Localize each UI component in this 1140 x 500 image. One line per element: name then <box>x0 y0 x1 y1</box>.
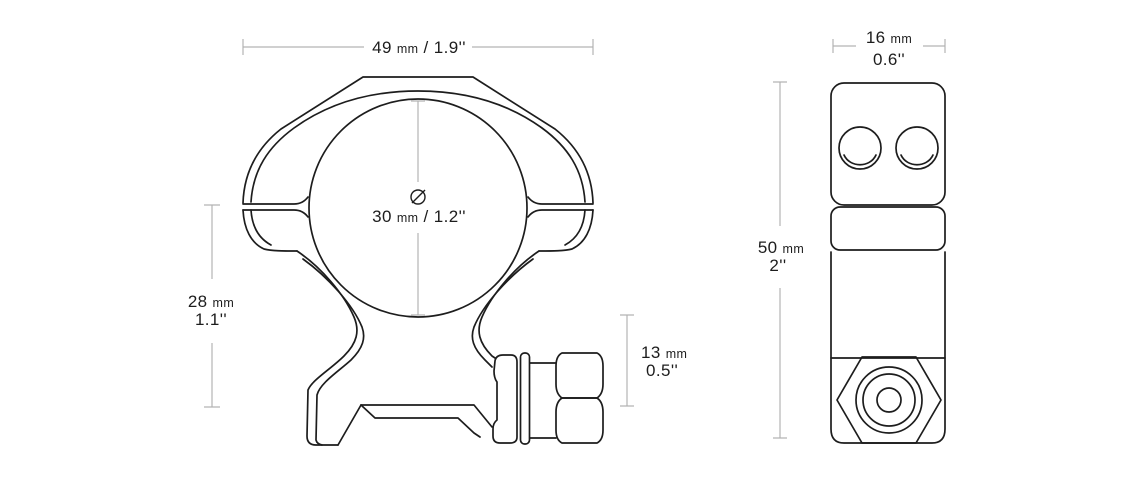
scope-ring-technical-drawing: 49mm/ 1.9'' 30mm/ 1.2'' 28mm 1.1'' 13mm … <box>0 0 1140 500</box>
front-split-line-left-upper <box>243 197 308 204</box>
front-wing-right-inner <box>565 210 585 245</box>
side-screw-hole-right-depth-arc <box>901 155 933 165</box>
dim-inner-diameter: 30mm/ 1.2'' <box>372 101 466 315</box>
dim-clamp-height-label-mm: 13mm <box>641 343 687 362</box>
scope-ring-front-view <box>243 77 603 445</box>
dim-saddle-height-label-mm: 28mm <box>188 292 234 311</box>
front-clamp-plate <box>521 353 530 444</box>
scope-ring-side-view <box>831 83 945 443</box>
side-nut-middle-circle <box>863 374 915 426</box>
side-top-block <box>831 83 945 205</box>
front-bolt-shaft <box>530 363 556 438</box>
front-hex-nut-upper <box>556 353 603 398</box>
dim-inner-diameter-label: 30mm/ 1.2'' <box>372 207 466 226</box>
front-leg-right-inner <box>472 259 533 367</box>
dim-clamp-height-label-in: 0.5'' <box>646 361 678 380</box>
dim-overall-width: 49mm/ 1.9'' <box>243 38 593 57</box>
dim-clamp-height-line <box>620 315 634 406</box>
front-rail-dovetail-line <box>361 405 480 437</box>
front-rail-top-line <box>361 405 492 427</box>
front-split-line-right-upper <box>528 197 593 204</box>
front-split-line-left-lower <box>243 210 308 217</box>
side-nut-outer-circle <box>856 367 922 433</box>
dim-side-height-label-in: 2'' <box>769 256 786 275</box>
side-screw-hole-left <box>839 127 881 169</box>
front-clamp-claw <box>493 355 517 443</box>
side-nut-center-circle <box>877 388 901 412</box>
side-hex-nut-face <box>837 357 941 443</box>
front-hex-nut-lower <box>556 398 603 443</box>
dim-clamp-height: 13mm 0.5'' <box>620 315 687 406</box>
front-jaw-left-edge <box>338 405 361 445</box>
side-lower-body <box>831 252 945 443</box>
dim-overall-width-label: 49mm/ 1.9'' <box>372 38 466 57</box>
side-screw-hole-left-depth-arc <box>844 155 876 165</box>
front-split-line-right-lower <box>528 210 593 217</box>
dim-saddle-height: 28mm 1.1'' <box>188 205 234 407</box>
dim-side-width: 16mm 0.6'' <box>833 28 945 69</box>
dim-side-height: 50mm 2'' <box>758 82 804 438</box>
dim-side-width-label-in: 0.6'' <box>873 50 905 69</box>
technical-drawing-canvas: 49mm/ 1.9'' 30mm/ 1.2'' 28mm 1.1'' 13mm … <box>0 0 1140 500</box>
side-screw-hole-right <box>896 127 938 169</box>
dim-side-height-label-mm: 50mm <box>758 238 804 257</box>
side-middle-band <box>831 207 945 250</box>
dim-saddle-height-label-in: 1.1'' <box>195 310 227 329</box>
diameter-icon <box>411 190 425 204</box>
front-wing-left-inner <box>251 210 271 245</box>
dim-side-width-label-mm: 16mm <box>866 28 912 47</box>
